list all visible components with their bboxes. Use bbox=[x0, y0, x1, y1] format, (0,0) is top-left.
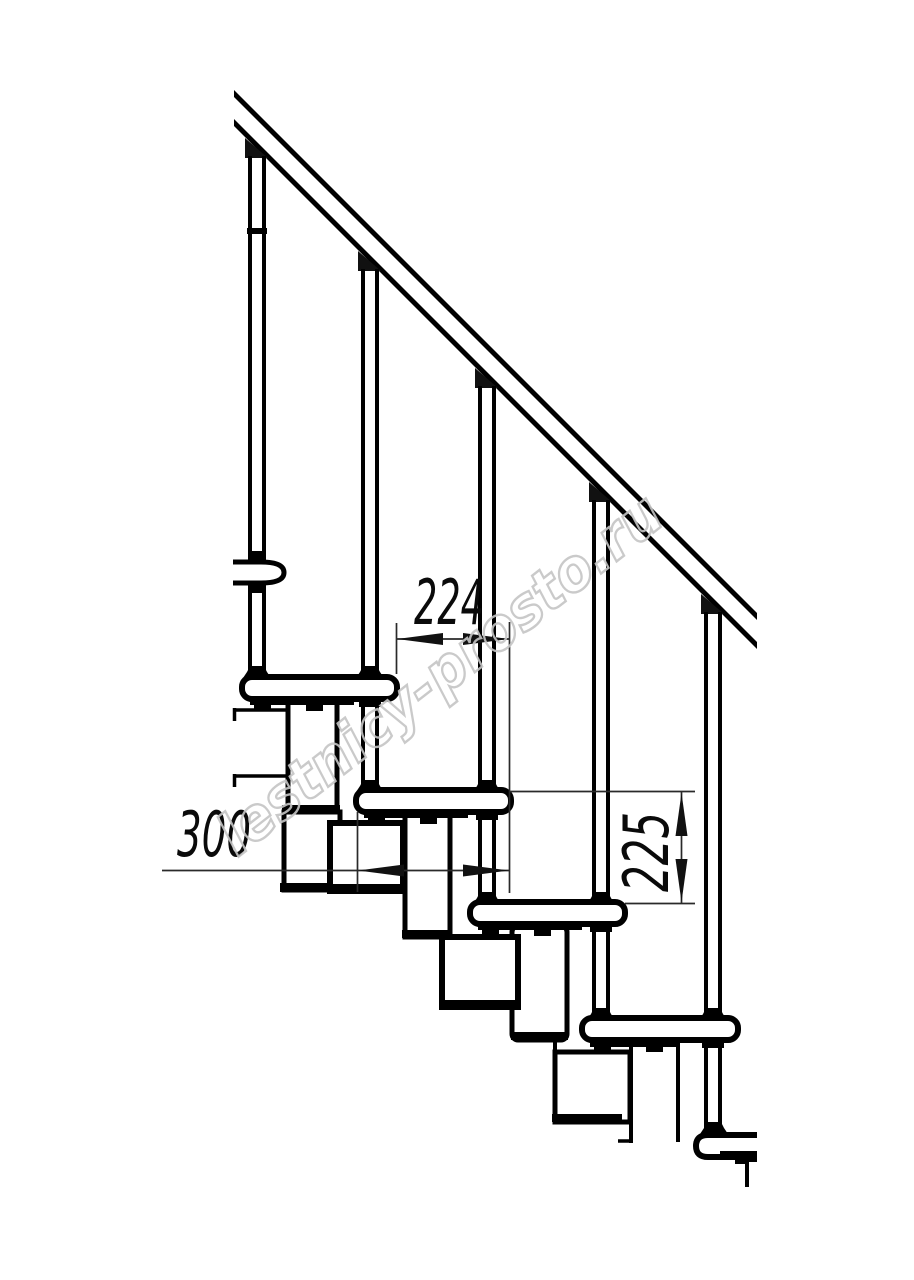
baluster-1 bbox=[247, 156, 267, 677]
dimension-step-rise: 225 bbox=[510, 792, 695, 904]
tread-3 bbox=[470, 902, 625, 936]
dimension-label-step-rise: 225 bbox=[610, 812, 683, 892]
technical-drawing-page: 224 300 225 lestnicy-prosto.ru bbox=[0, 0, 914, 1280]
tread-4 bbox=[582, 1018, 738, 1052]
tread-2 bbox=[356, 790, 511, 824]
landing-tread-end bbox=[233, 551, 284, 593]
support-module-4 bbox=[552, 1043, 678, 1143]
tread-5-partial bbox=[696, 1135, 757, 1187]
staircase-drawing: 224 300 225 lestnicy-prosto.ru bbox=[0, 0, 914, 1280]
baluster-5 bbox=[706, 612, 720, 1133]
support-module-3 bbox=[439, 926, 568, 1063]
support-module-2 bbox=[327, 814, 452, 938]
